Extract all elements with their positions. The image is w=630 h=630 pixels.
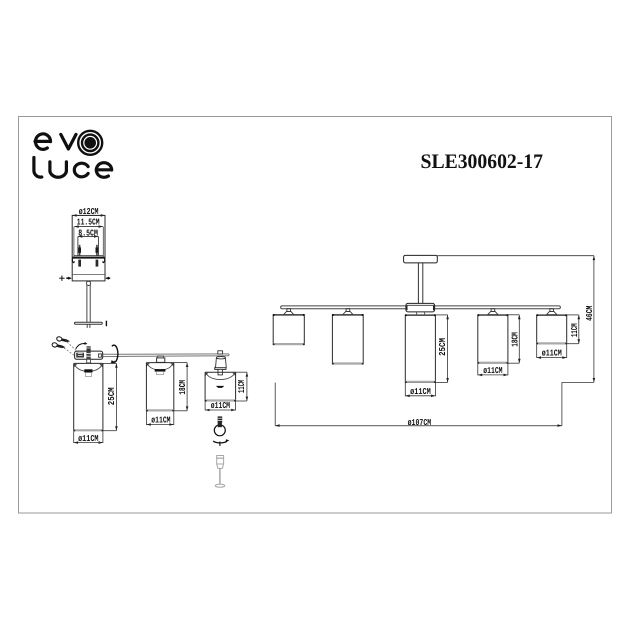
svg-text:SLE300602-17: SLE300602-17 (421, 151, 544, 173)
svg-text:25CM: 25CM (438, 338, 448, 356)
svg-text:ø107CM: ø107CM (408, 418, 432, 428)
svg-text:ø11CM: ø11CM (151, 416, 170, 426)
svg-text:11CM: 11CM (237, 380, 247, 393)
svg-text:18CM: 18CM (178, 380, 188, 395)
svg-text:ø11CM: ø11CM (410, 387, 431, 397)
svg-text:ø11CM: ø11CM (211, 401, 230, 411)
svg-text:ø11CM: ø11CM (483, 366, 502, 376)
svg-text:46CM: 46CM (585, 306, 595, 321)
svg-text:25CM: 25CM (107, 387, 117, 405)
svg-text:ø11CM: ø11CM (78, 434, 98, 444)
svg-text:18CM: 18CM (511, 332, 521, 347)
svg-text:ø11CM: ø11CM (542, 349, 562, 359)
svg-text:11CM: 11CM (570, 323, 580, 337)
